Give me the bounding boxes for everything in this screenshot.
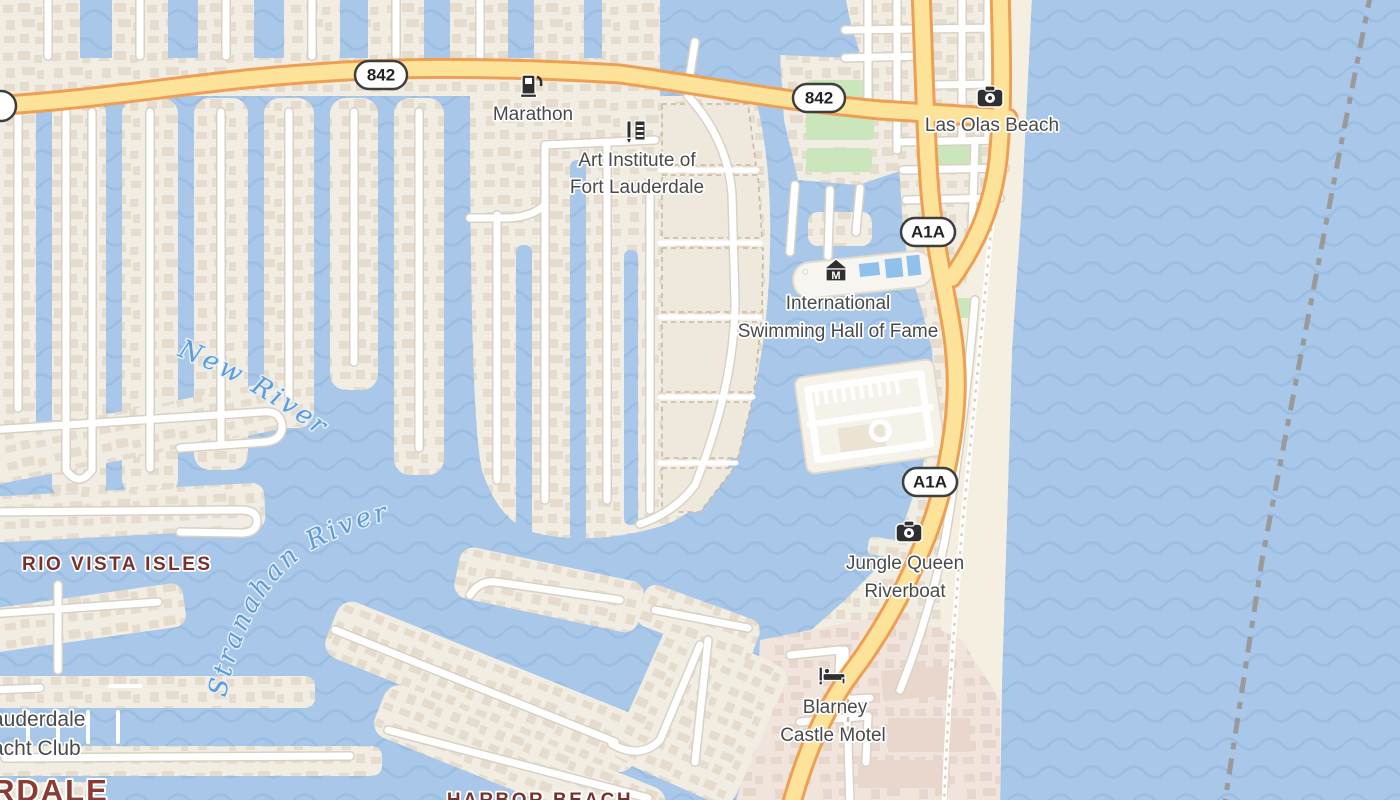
map-viewport: 842 842 A1A A1A (0, 0, 1400, 800)
camera-icon[interactable] (977, 86, 1003, 107)
svg-text:auderdale: auderdale (0, 708, 85, 731)
map-canvas[interactable]: 842 842 A1A A1A (0, 0, 1400, 800)
museum-icon-glyph: M (831, 270, 840, 282)
svg-text:acht Club: acht Club (0, 737, 81, 760)
poi-label-las-olas-beach[interactable]: Las Olas Beach (925, 115, 1059, 136)
art-institute-icon[interactable] (627, 121, 645, 143)
route-shield-label: A1A (911, 223, 945, 242)
bahia-mar-complex (794, 359, 946, 475)
route-shield-label: A1A (913, 473, 947, 492)
route-shield-842-east: 842 (793, 84, 845, 112)
poi-label-marathon[interactable]: Marathon (493, 104, 573, 125)
route-shield-label: 842 (805, 89, 833, 108)
route-shield-a1a-north: A1A (901, 218, 955, 246)
svg-text:Blarney[interactable]: Blarney (803, 697, 868, 718)
svg-text:Riverboat[interactable]: Riverboat (864, 581, 946, 602)
route-shield-label: 842 (367, 66, 395, 85)
svg-text:Swimming Hall of Fame[interactable]: Swimming Hall of Fame (738, 321, 939, 342)
route-shield-842-west: 842 (355, 61, 407, 89)
camera-icon[interactable] (896, 521, 922, 542)
city-label-fort-lauderdale-partial: RDALE (0, 773, 109, 800)
svg-text:International[interactable]: International (786, 293, 891, 314)
district-label-harbor-beach: HARBOR BEACH (447, 790, 633, 800)
route-shield-a1a-south: A1A (903, 468, 957, 496)
svg-text:Fort Lauderdale[interactable]: Fort Lauderdale (570, 177, 704, 198)
svg-text:Jungle Queen[interactable]: Jungle Queen (846, 553, 964, 574)
svg-text:Art Institute of[interactable]: Art Institute of (578, 150, 696, 171)
district-label-rio-vista-isles: RIO VISTA ISLES (22, 554, 213, 575)
svg-text:Castle Motel[interactable]: Castle Motel (780, 725, 886, 746)
